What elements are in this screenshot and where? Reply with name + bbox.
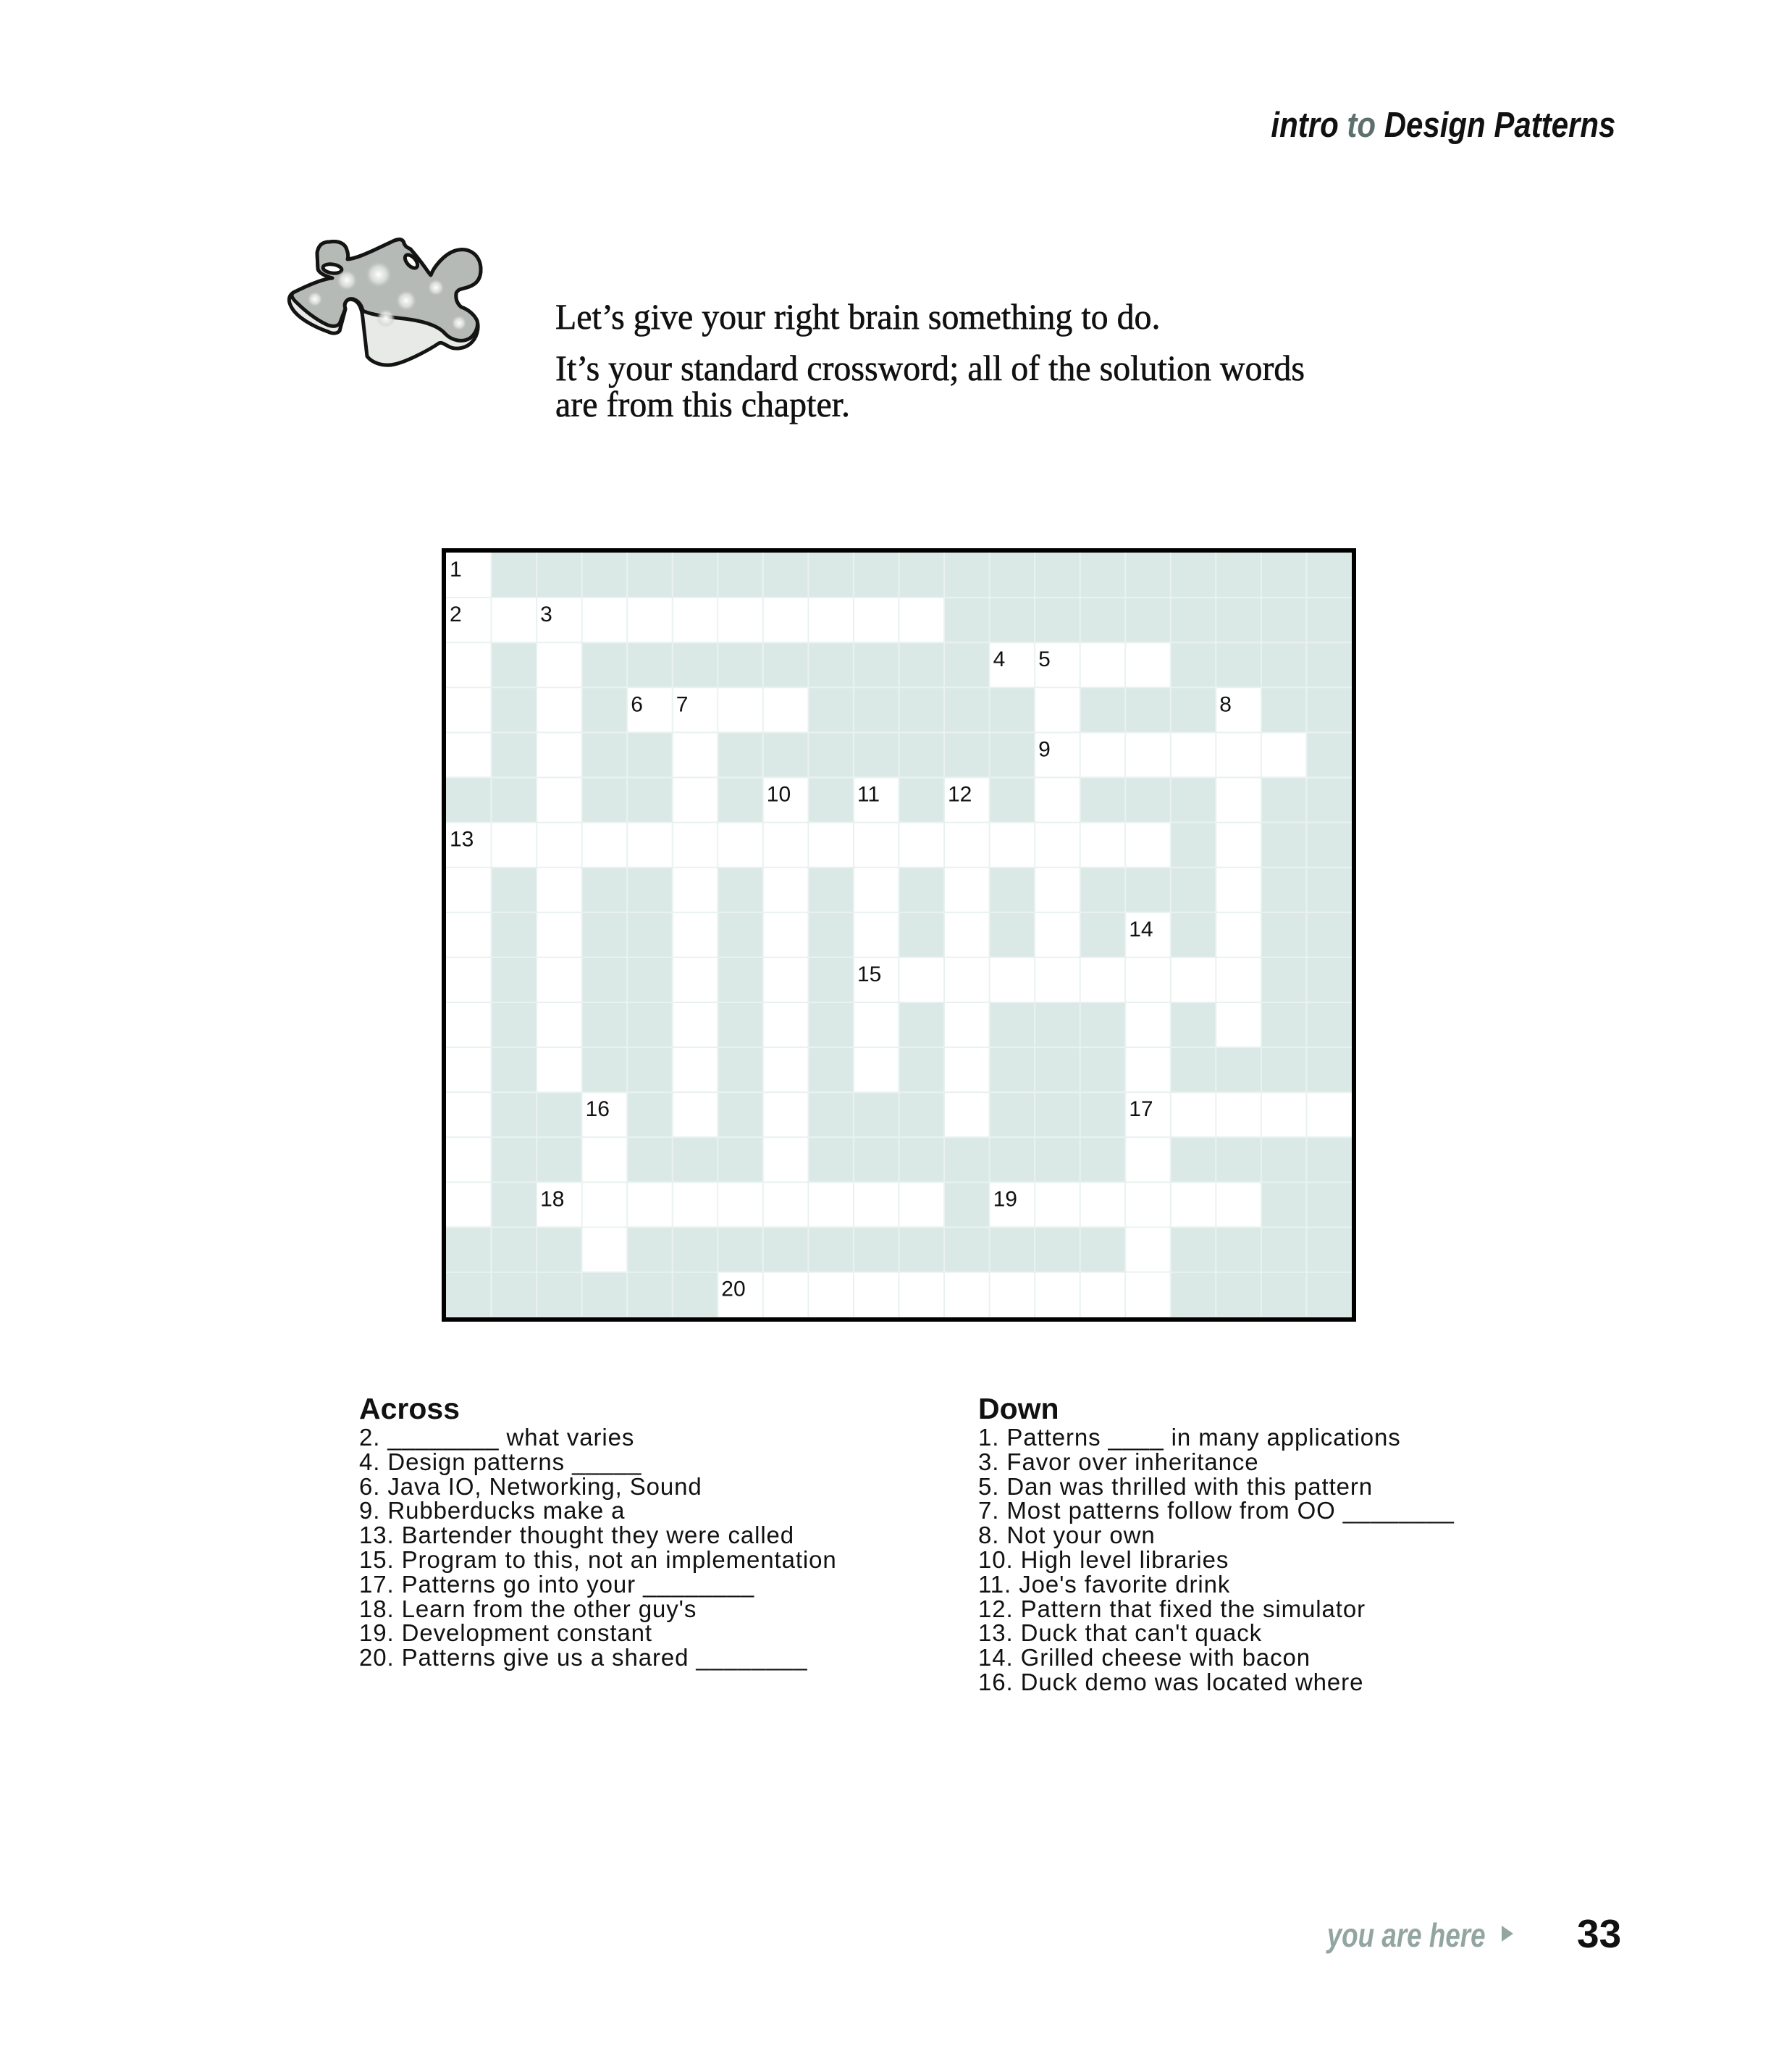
svg-text:12: 12: [948, 783, 972, 807]
svg-text:7: 7: [676, 692, 689, 716]
svg-text:13: 13: [450, 828, 474, 852]
svg-text:19: 19: [993, 1187, 1017, 1211]
svg-text:14: 14: [1129, 918, 1153, 941]
svg-text:18: 18: [540, 1187, 564, 1211]
svg-text:6: 6: [631, 692, 643, 716]
svg-text:9: 9: [1038, 737, 1051, 761]
svg-text:11: 11: [857, 783, 880, 807]
svg-text:5: 5: [1038, 647, 1051, 671]
svg-text:16: 16: [586, 1097, 610, 1121]
svg-text:4: 4: [993, 647, 1006, 671]
svg-text:10: 10: [767, 783, 791, 807]
svg-text:20: 20: [721, 1278, 745, 1301]
svg-text:3: 3: [540, 603, 552, 626]
svg-text:17: 17: [1129, 1097, 1153, 1121]
svg-text:1: 1: [450, 558, 462, 582]
svg-text:8: 8: [1219, 692, 1232, 716]
svg-text:2: 2: [450, 603, 462, 626]
svg-text:15: 15: [857, 962, 881, 986]
